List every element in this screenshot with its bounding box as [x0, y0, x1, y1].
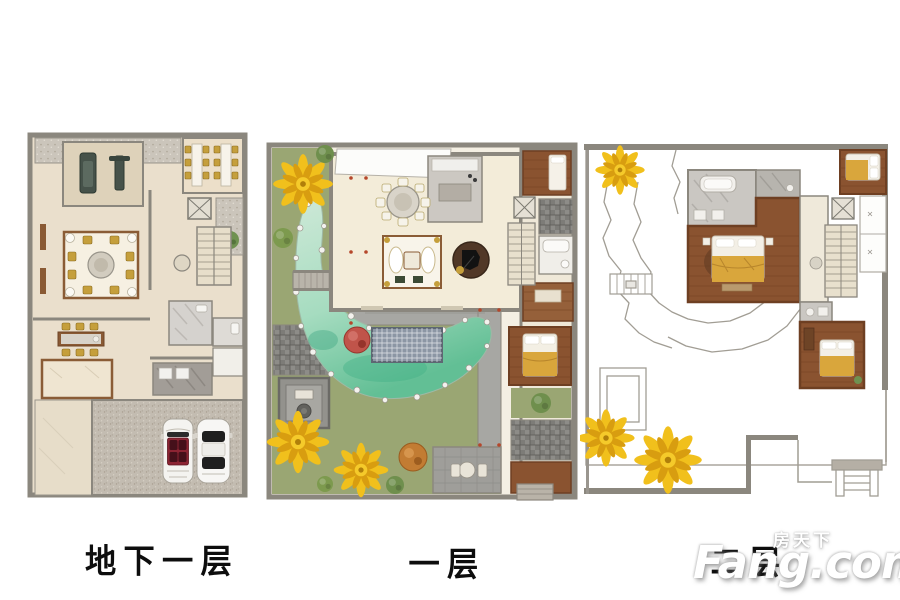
- north-east-bedroom: [840, 150, 886, 194]
- basement-floor-plan: [25, 128, 250, 500]
- sedan-car-icon: [195, 419, 233, 483]
- orange-tree-icon: [399, 443, 427, 471]
- fang-logo: Fang.com: [693, 536, 900, 589]
- basement-laundry-room: [153, 363, 212, 395]
- first-floor-label: 一层: [409, 537, 486, 585]
- entry-steps: [517, 484, 553, 500]
- kitchen: [428, 156, 482, 222]
- east-bedroom-north: [523, 151, 571, 195]
- east-tearoom: [523, 283, 573, 321]
- treadmill-icon: [80, 153, 96, 193]
- first-floor-elevator-icon: [514, 197, 535, 218]
- wardrobe-icon: [804, 328, 814, 350]
- garden-pergola: [372, 328, 442, 362]
- bathtub-icon: [543, 240, 569, 252]
- basement-elevator-icon: [188, 198, 211, 219]
- entry-steps-outline: [832, 460, 882, 496]
- basement-driveway-ramp: [35, 400, 92, 495]
- east-tile-room: [539, 199, 573, 234]
- second-floor-plan: [580, 140, 892, 502]
- shrub-icon: [531, 393, 551, 413]
- ginkgo-tree-icon: [334, 443, 389, 498]
- basement-floor-label: 地下一层: [85, 534, 239, 582]
- garden-patio: [433, 447, 501, 493]
- shrub-icon: [386, 476, 404, 494]
- shower-room: [756, 170, 800, 198]
- patio-table: [459, 462, 475, 478]
- garden-pavilion: [279, 378, 329, 428]
- ginkgo-tree-icon: [595, 145, 644, 194]
- plant-icon: [854, 376, 862, 384]
- hall-table: [810, 257, 822, 269]
- south-east-bedroom: [800, 322, 864, 388]
- ginkgo-tree-icon: [267, 411, 329, 473]
- basement-dining-set: [58, 323, 104, 356]
- second-floor-elevator-icon: [832, 198, 854, 219]
- floorplan-canvas: 地下一层 一层 二层 房天下 Fang.com: [0, 0, 900, 600]
- second-floor-stairs-icon: [825, 225, 857, 297]
- shrub-icon: [316, 145, 334, 163]
- first-floor-stairs-icon: [508, 223, 535, 285]
- fang-watermark: 房天下 Fang.com: [693, 520, 898, 598]
- basement-foyer-room: [42, 360, 112, 398]
- basement-gym-room: [63, 142, 143, 206]
- red-tree-icon: [344, 327, 370, 353]
- first-floor-plan: [265, 140, 579, 502]
- bridge-outline: [610, 274, 652, 294]
- basement-living-area: [64, 232, 138, 298]
- living-room-set: [383, 236, 441, 288]
- south-bathroom: [800, 302, 832, 322]
- shrub-icon: [273, 228, 293, 248]
- basement-stairs-icon: [197, 227, 231, 285]
- basement-mahjong-room: [183, 138, 243, 193]
- east-white-rooms: [860, 196, 886, 272]
- east-bedroom-south: [509, 327, 571, 385]
- basement-storage-room: [213, 348, 243, 376]
- ginkgo-tree-icon: [273, 154, 333, 214]
- basement-round-table: [174, 255, 190, 271]
- main-house: [331, 149, 521, 310]
- ginkgo-tree-icon: [634, 426, 702, 494]
- east-court-tiles: [511, 420, 571, 460]
- shrub-icon: [317, 476, 333, 492]
- convertible-car-icon: [161, 419, 196, 483]
- basement-bathroom: [169, 301, 212, 345]
- basement-bathroom-2: [213, 318, 243, 346]
- east-bathroom: [539, 236, 573, 274]
- hallway: [800, 196, 828, 302]
- piano-lounge: [453, 242, 489, 278]
- dining-table-round: [376, 178, 430, 226]
- master-bathroom: [688, 170, 756, 226]
